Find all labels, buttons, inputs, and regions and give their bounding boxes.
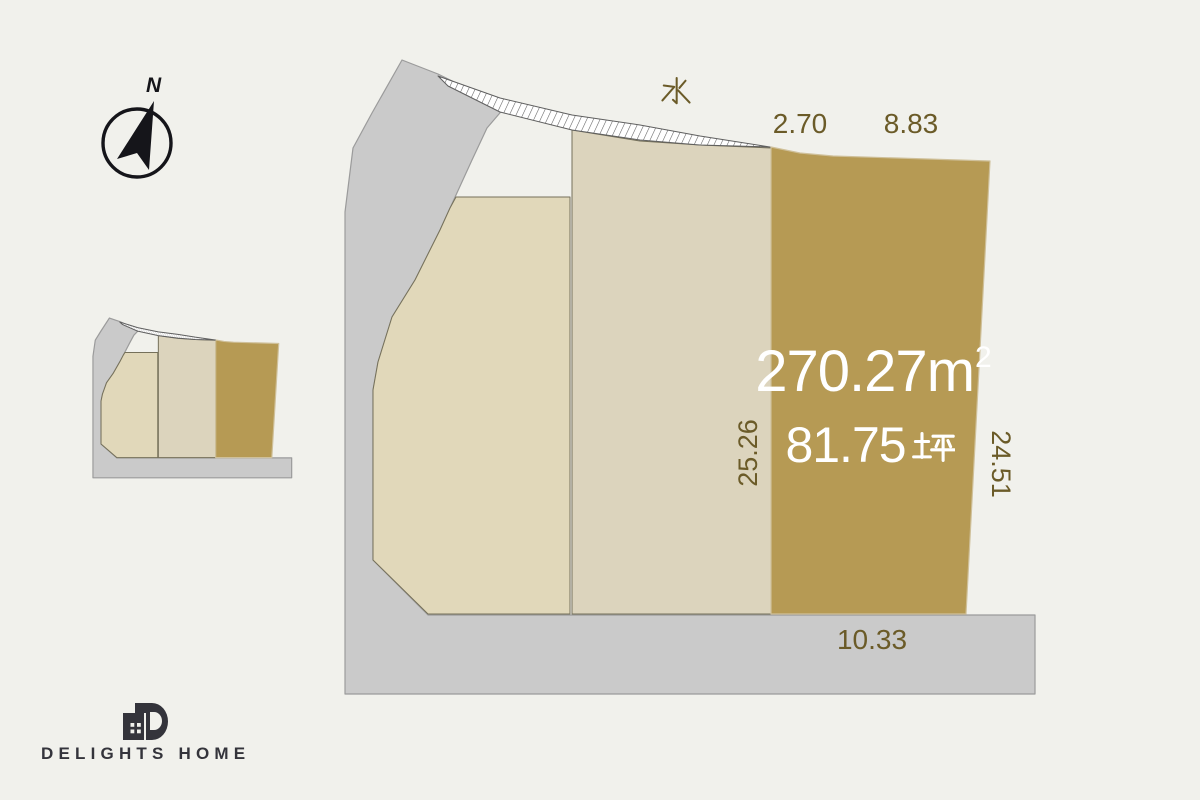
dimension-top-2: 8.83 — [871, 108, 951, 140]
flyer-canvas: N 2.70 8.83 25.26 24.51 10.33 270.27m2 8… — [0, 0, 1200, 800]
parcel-area-tsubo: 81.75 — [745, 416, 995, 474]
parcel-area-sqm-exponent: 2 — [975, 341, 992, 374]
parcel-area-sqm: 270.27m2 — [723, 338, 1023, 405]
compass-icon — [103, 101, 171, 177]
parcel-area-tsubo-value: 81.75 — [785, 416, 905, 474]
logo-d-icon — [123, 703, 168, 740]
compass-north-label: N — [146, 74, 161, 98]
water-label-glyph — [659, 76, 693, 110]
tsubo-unit-glyph — [911, 423, 955, 467]
parcel-area-sqm-unit: m — [927, 339, 974, 404]
overview-map — [93, 318, 292, 478]
logo-text: DELIGHTS HOME — [41, 744, 250, 764]
parcel-area-sqm-value: 270.27 — [755, 339, 926, 404]
dimension-top-1: 2.70 — [760, 108, 840, 140]
dimension-bottom: 10.33 — [822, 624, 922, 656]
